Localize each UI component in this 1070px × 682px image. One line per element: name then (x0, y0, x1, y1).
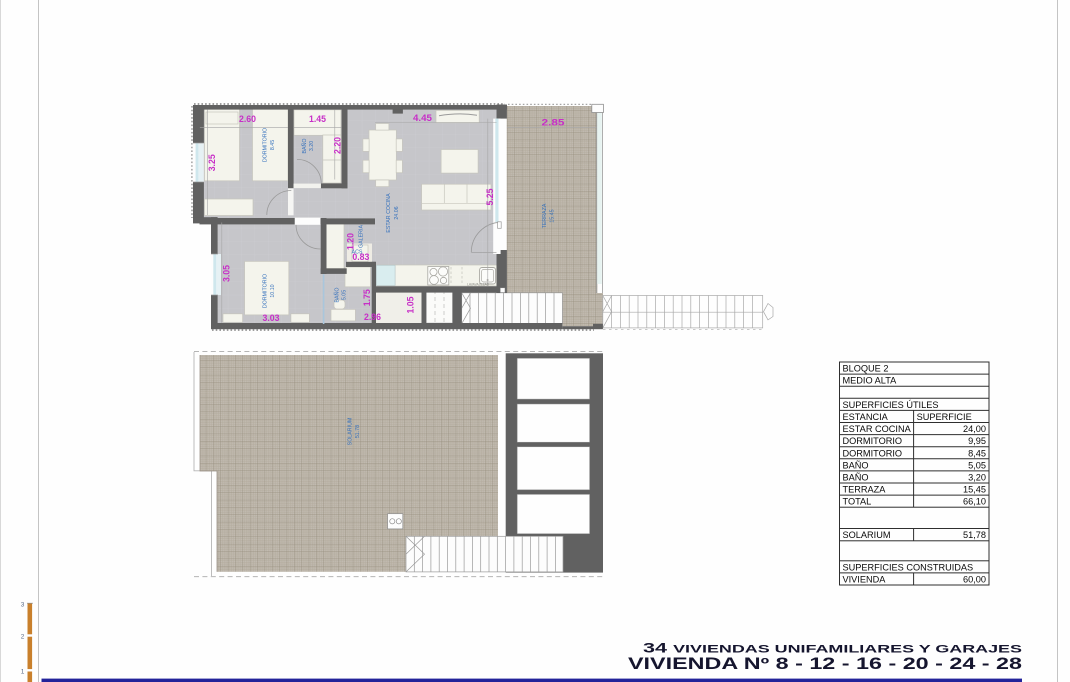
svg-text:DORMITORIO: DORMITORIO (263, 274, 269, 308)
svg-text:ACS: ACS (352, 250, 363, 256)
svg-text:5.25: 5.25 (485, 188, 496, 206)
svg-text:MEDIO ALTA: MEDIO ALTA (843, 376, 898, 386)
svg-text:8.45: 8.45 (270, 140, 276, 150)
svg-text:2: 2 (21, 634, 25, 641)
svg-text:SOLARIUM: SOLARIUM (843, 530, 891, 540)
svg-text:3.20: 3.20 (309, 141, 315, 151)
svg-text:15.45: 15.45 (550, 209, 556, 222)
svg-text:1.05: 1.05 (406, 296, 417, 314)
svg-text:TERRAZA: TERRAZA (843, 485, 887, 495)
svg-text:BAÑO: BAÑO (843, 473, 869, 483)
svg-text:5.05: 5.05 (342, 290, 348, 300)
svg-text:8,45: 8,45 (968, 448, 986, 458)
svg-text:1: 1 (21, 668, 25, 675)
svg-text:34 VIVIENDAS UNIFAMILIARES Y G: 34 VIVIENDAS UNIFAMILIARES Y GARAJES (643, 640, 1023, 655)
svg-text:TERRAZA: TERRAZA (542, 203, 548, 228)
svg-text:DORMITORIO: DORMITORIO (843, 436, 903, 446)
svg-text:60,00: 60,00 (963, 575, 986, 585)
svg-text:1.75: 1.75 (362, 289, 373, 307)
svg-text:3: 3 (21, 602, 25, 609)
svg-text:DORMITORIO: DORMITORIO (843, 448, 903, 458)
svg-text:2.60: 2.60 (239, 114, 256, 125)
svg-text:VIVIENDA Nº 8 - 12 - 16 - 20 -: VIVIENDA Nº 8 - 12 - 16 - 20 - 24 - 28 (628, 655, 1022, 673)
svg-text:4.45: 4.45 (413, 113, 433, 124)
svg-text:SUPERFICIES ÚTILES: SUPERFICIES ÚTILES (843, 400, 939, 410)
svg-text:2.85: 2.85 (542, 118, 566, 129)
svg-text:BLOQUE 2: BLOQUE 2 (843, 364, 889, 374)
svg-text:ESTAR COCINA: ESTAR COCINA (843, 424, 912, 434)
svg-text:51,78: 51,78 (963, 530, 986, 540)
svg-text:GALERIA: GALERIA (359, 225, 365, 248)
svg-text:ESTAR COCINA: ESTAR COCINA (386, 193, 392, 233)
svg-text:BAÑO: BAÑO (301, 138, 308, 153)
svg-text:SUPERFICIE: SUPERFICIE (917, 412, 972, 422)
svg-text:15,45: 15,45 (963, 485, 986, 495)
svg-text:3.05: 3.05 (222, 264, 233, 282)
svg-text:SOLARIUM: SOLARIUM (348, 418, 354, 446)
svg-text:3,20: 3,20 (968, 473, 986, 483)
svg-text:51.78: 51.78 (355, 425, 361, 438)
svg-text:2.96: 2.96 (364, 312, 381, 323)
svg-text:SUPERFICIES CONSTRUIDAS: SUPERFICIES CONSTRUIDAS (843, 562, 974, 572)
svg-text:66,10: 66,10 (963, 497, 986, 507)
svg-text:5,05: 5,05 (968, 460, 986, 470)
svg-text:BAÑO: BAÑO (843, 460, 869, 470)
svg-text:BAÑO: BAÑO (334, 287, 341, 302)
svg-text:24,00: 24,00 (963, 424, 986, 434)
svg-text:VIVIENDA: VIVIENDA (843, 575, 887, 585)
svg-text:24.06: 24.06 (394, 206, 400, 219)
svg-text:1.45: 1.45 (309, 114, 327, 125)
svg-text:3.25: 3.25 (207, 154, 218, 172)
svg-text:LAVAVAJILLAS: LAVAVAJILLAS (467, 283, 489, 287)
svg-text:3.03: 3.03 (263, 313, 280, 324)
svg-text:10.10: 10.10 (270, 284, 276, 297)
svg-text:9,95: 9,95 (968, 436, 986, 446)
svg-text:ESTANCIA: ESTANCIA (843, 412, 889, 422)
svg-text:DORMITORIO: DORMITORIO (263, 128, 269, 162)
svg-text:1.20: 1.20 (346, 233, 357, 250)
svg-text:TOTAL: TOTAL (843, 497, 872, 507)
svg-text:2.20: 2.20 (333, 137, 344, 154)
